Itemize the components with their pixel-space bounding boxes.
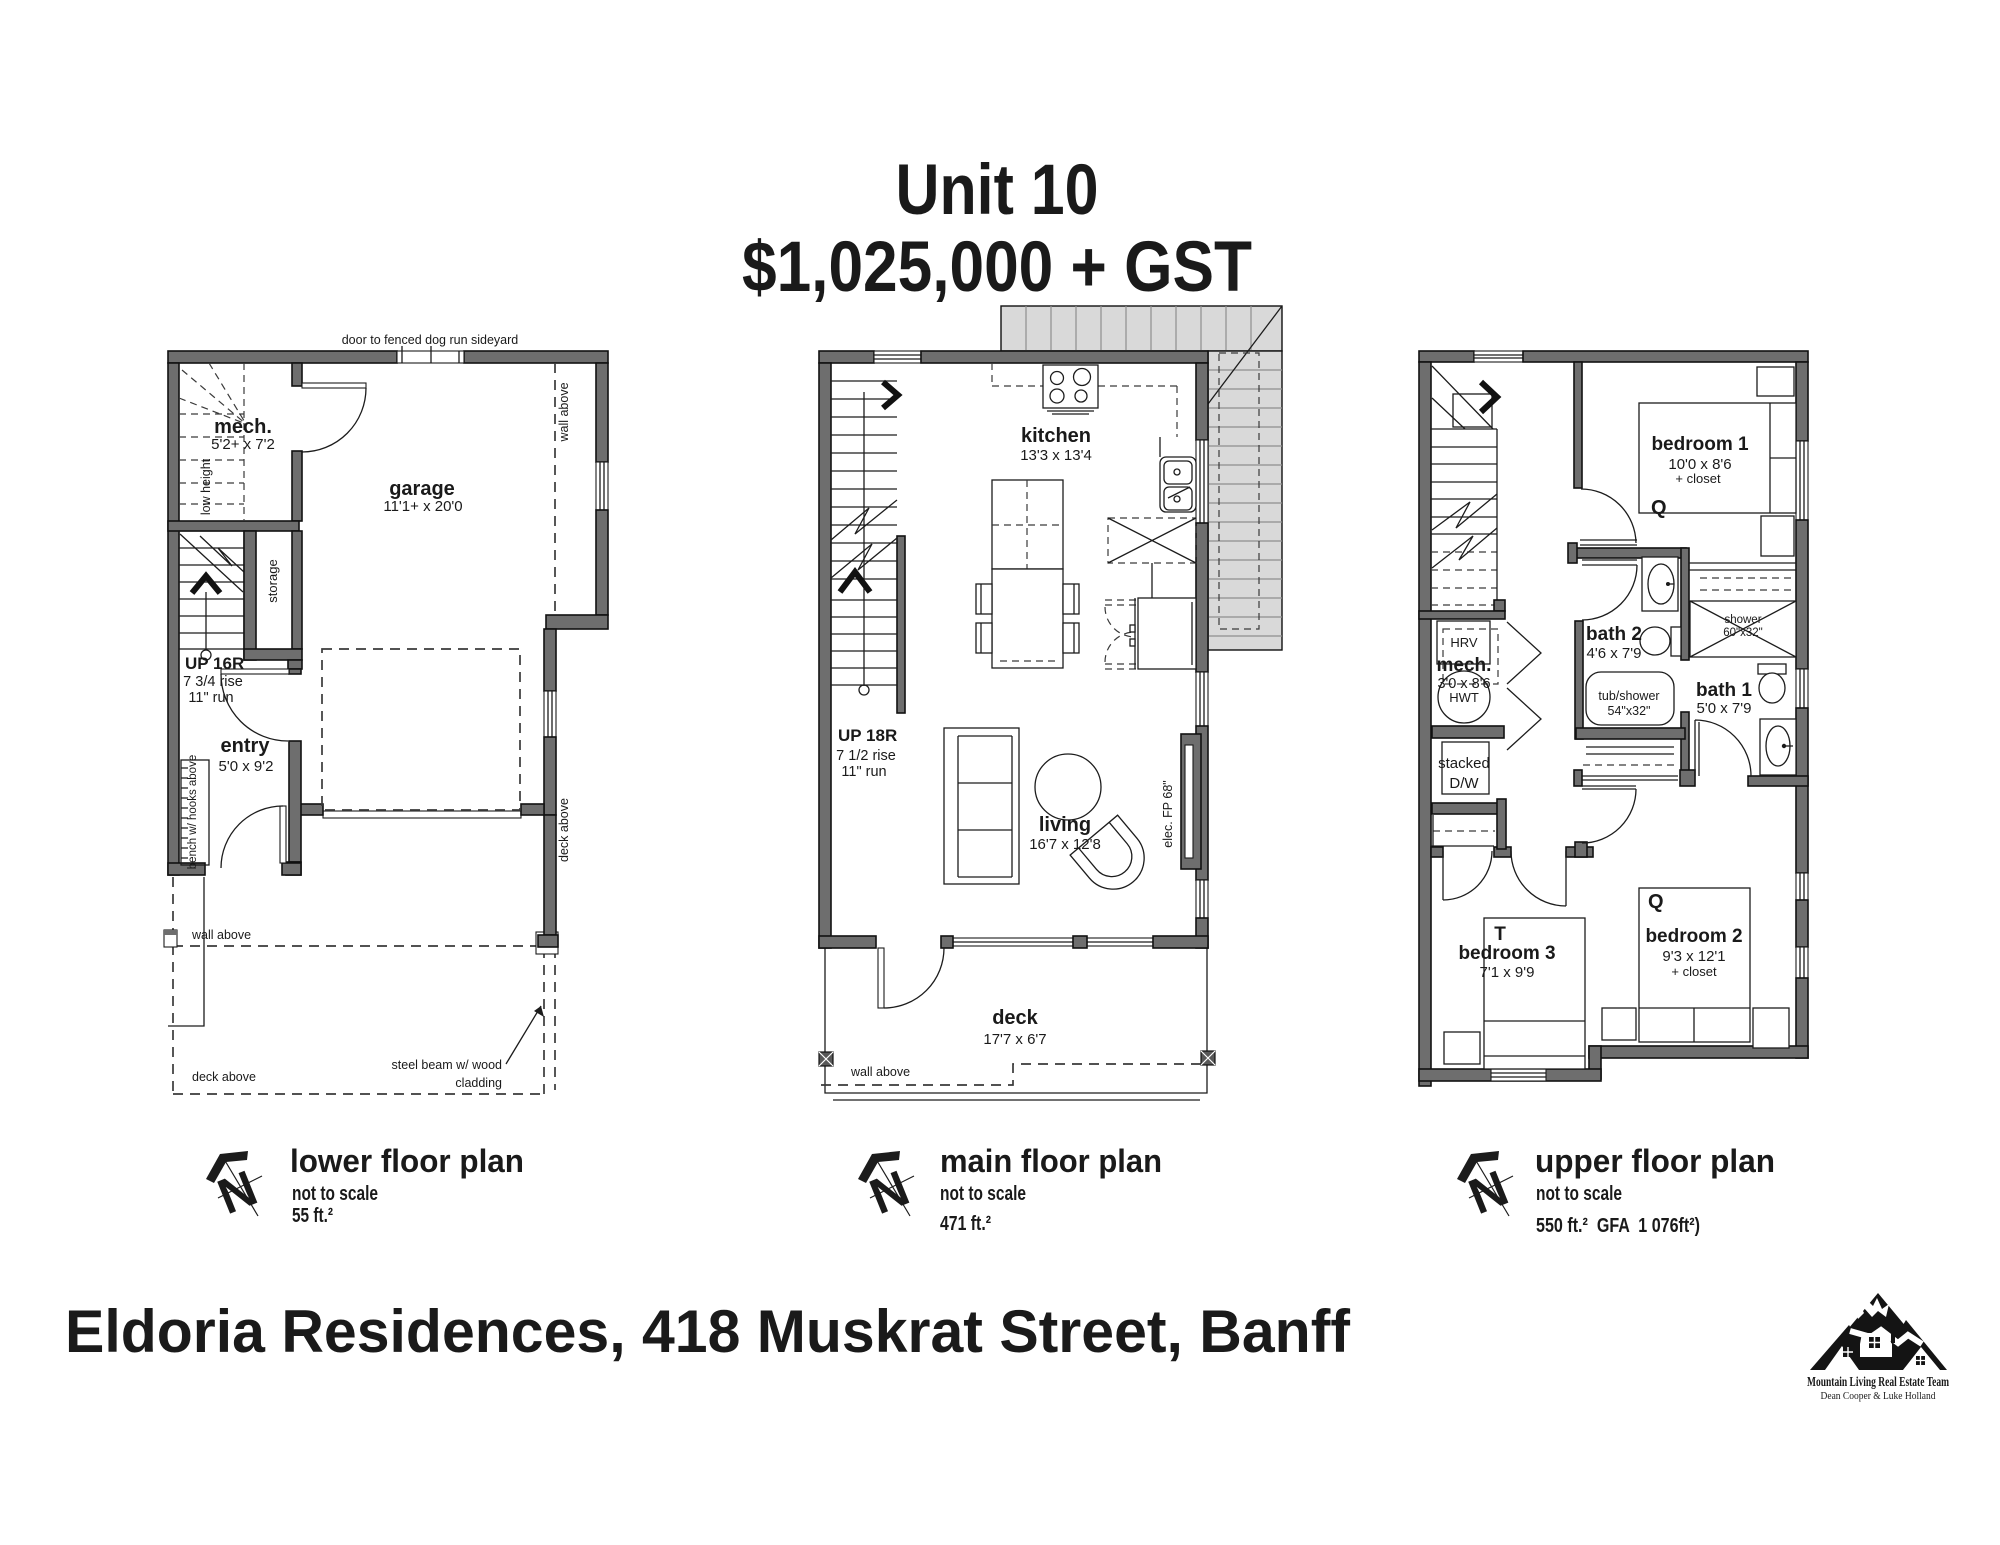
svg-text:D/W: D/W [1449,775,1479,792]
svg-text:9'3 x 12'1: 9'3 x 12'1 [1662,948,1725,965]
svg-text:garage: garage [389,478,455,500]
svg-text:not to scale: not to scale [940,1183,1026,1205]
svg-text:cladding: cladding [455,1076,502,1090]
svg-text:upper floor plan: upper floor plan [1535,1143,1775,1179]
svg-text:13'3 x 13'4: 13'3 x 13'4 [1020,447,1092,464]
svg-text:living: living [1039,814,1091,836]
svg-text:54"x32": 54"x32" [1608,704,1651,718]
svg-text:$1,025,000 + GST: $1,025,000 + GST [742,228,1252,307]
svg-text:Unit 10: Unit 10 [896,151,1099,230]
svg-text:UP 16R: UP 16R [185,654,244,673]
svg-text:low height: low height [199,458,213,515]
svg-text:deck: deck [992,1007,1038,1029]
svg-text:11'1+ x 20'0: 11'1+ x 20'0 [383,498,462,515]
svg-text:17'7 x 6'7: 17'7 x 6'7 [983,1031,1046,1048]
svg-text:stacked: stacked [1438,755,1490,772]
svg-text:wall above: wall above [850,1065,910,1079]
svg-text:not to scale: not to scale [1536,1183,1622,1205]
svg-text:Q: Q [1651,497,1667,519]
svg-text:Dean Cooper & Luke Holland: Dean Cooper & Luke Holland [1821,1390,1936,1402]
svg-text:shower: shower [1724,614,1761,626]
svg-text:HWT: HWT [1449,690,1479,705]
svg-text:550 ft.² GFA 1 076ft²): 550 ft.² GFA 1 076ft²) [1536,1215,1700,1237]
svg-text:Eldoria Residences, 418 Muskra: Eldoria Residences, 418 Muskrat Street, … [65,1298,1351,1365]
svg-text:kitchen: kitchen [1021,425,1091,447]
svg-text:T: T [1494,924,1506,945]
svg-text:5'0 x 7'9: 5'0 x 7'9 [1697,700,1752,717]
svg-text:deck above: deck above [557,798,571,862]
svg-text:bath 2: bath 2 [1586,624,1642,645]
svg-text:storage: storage [265,559,280,602]
svg-text:7 1/2 rise: 7 1/2 rise [836,748,896,764]
svg-text:5'0 x 9'2: 5'0 x 9'2 [219,758,274,775]
svg-text:mech.: mech. [1437,655,1492,676]
svg-text:5'2+ x 7'2: 5'2+ x 7'2 [211,436,275,453]
svg-text:60"x32": 60"x32" [1723,627,1763,639]
svg-text:entry: entry [221,735,271,757]
svg-text:16'7 x 12'8: 16'7 x 12'8 [1029,836,1101,853]
svg-text:+ closet: + closet [1671,964,1717,979]
svg-text:4'6 x 7'9: 4'6 x 7'9 [1587,645,1642,662]
svg-text:main floor plan: main floor plan [940,1143,1162,1179]
svg-text:elec. FP 68": elec. FP 68" [1161,780,1175,847]
svg-text:Mountain Living Real Estate Te: Mountain Living Real Estate Team [1807,1374,1950,1389]
svg-text:deck above: deck above [192,1070,256,1084]
svg-text:mech.: mech. [214,416,272,438]
svg-text:bedroom 2: bedroom 2 [1645,926,1742,947]
svg-text:bedroom 1: bedroom 1 [1651,434,1749,455]
svg-text:bath 1: bath 1 [1696,680,1752,701]
svg-text:wall above: wall above [191,928,251,942]
svg-text:bench w/ hooks above: bench w/ hooks above [187,755,199,869]
svg-text:door to fenced dog run sideyar: door to fenced dog run sideyard [342,333,519,347]
svg-text:11" run: 11" run [188,690,233,706]
svg-text:Q: Q [1648,891,1664,913]
svg-text:11" run: 11" run [841,764,886,780]
svg-text:+ closet: + closet [1675,471,1721,486]
svg-text:55 ft.²: 55 ft.² [292,1205,333,1227]
svg-text:HRV: HRV [1450,635,1478,650]
svg-text:bedroom 3: bedroom 3 [1458,943,1555,964]
svg-text:steel beam w/ wood: steel beam w/ wood [392,1058,503,1072]
svg-text:not to scale: not to scale [292,1183,378,1205]
svg-text:UP 18R: UP 18R [838,726,897,745]
svg-text:7'1 x 9'9: 7'1 x 9'9 [1480,964,1535,981]
svg-text:7 3/4 rise: 7 3/4 rise [183,674,243,690]
svg-text:tub/shower: tub/shower [1598,689,1659,703]
svg-text:lower floor plan: lower floor plan [290,1143,524,1179]
svg-text:wall above: wall above [557,382,571,442]
svg-text:471 ft.²: 471 ft.² [940,1213,991,1235]
